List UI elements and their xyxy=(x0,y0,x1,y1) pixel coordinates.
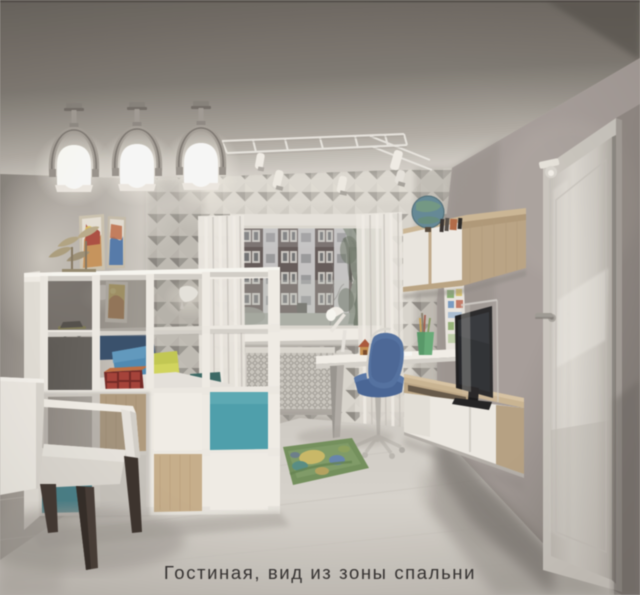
svg-text:Гостиная, вид из зоны спальни: Гостиная, вид из зоны спальни xyxy=(164,562,476,583)
